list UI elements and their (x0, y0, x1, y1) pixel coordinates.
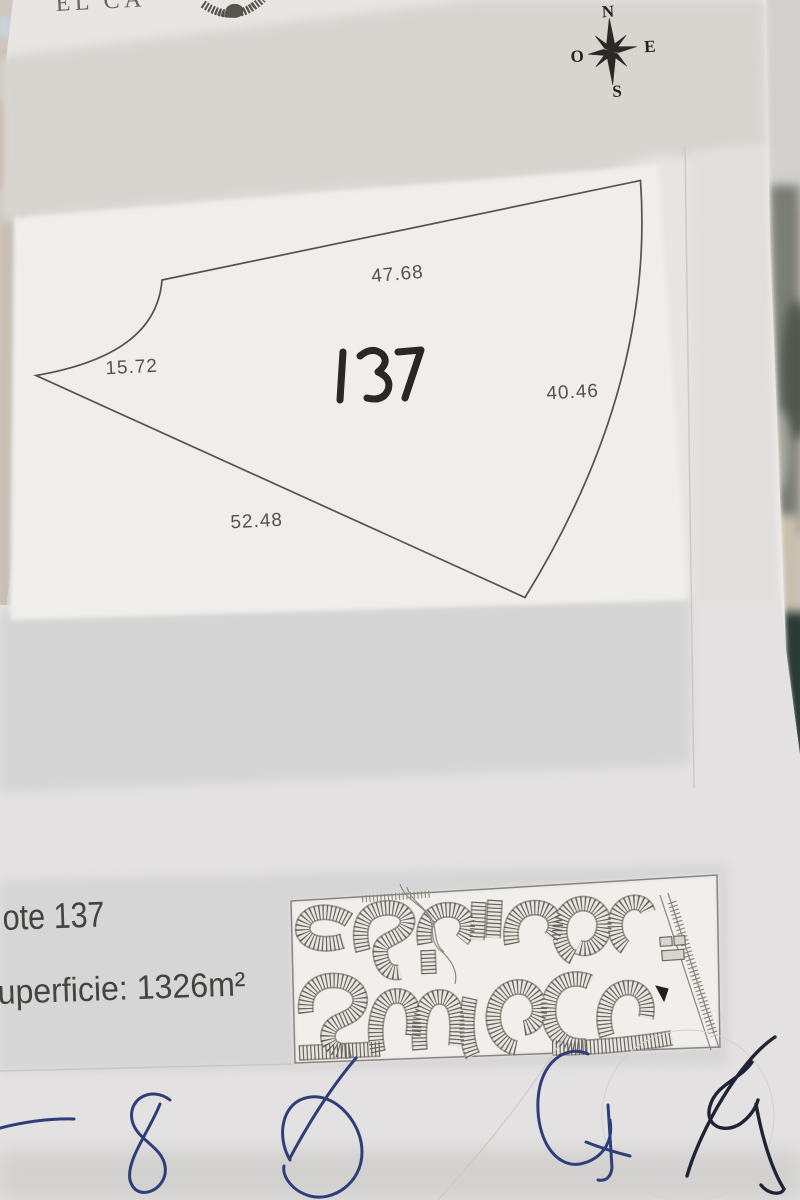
svg-text:O: O (570, 46, 584, 66)
svg-text:E: E (644, 37, 656, 57)
svg-text:ote 137: ote 137 (2, 893, 105, 938)
svg-text:40.46: 40.46 (546, 381, 600, 405)
svg-text:S: S (612, 82, 622, 101)
svg-text:N: N (601, 2, 615, 22)
svg-text:52.48: 52.48 (230, 510, 284, 534)
svg-text:15.72: 15.72 (105, 356, 159, 380)
